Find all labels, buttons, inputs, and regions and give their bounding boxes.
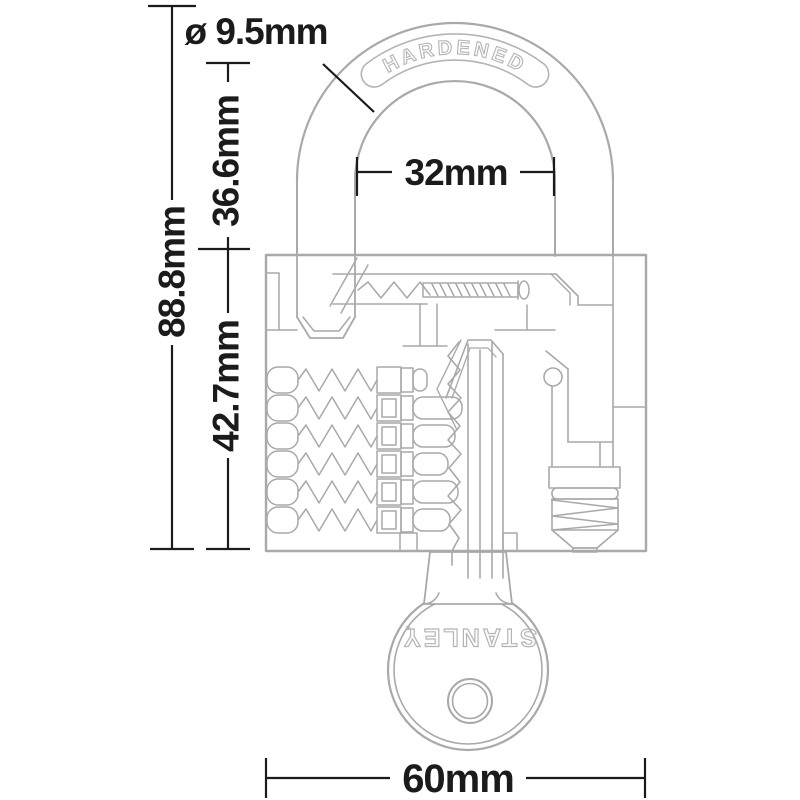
latch-mechanism: [544, 256, 620, 552]
trademark-dot: [406, 626, 410, 630]
shackle-spring-screw: [358, 281, 529, 299]
dim-text-body-height: 42.7mm: [206, 320, 247, 452]
dim-text-body-width: 60mm: [402, 757, 514, 800]
pin-springs: [267, 367, 462, 533]
key-brand-label: STANLEY: [401, 623, 537, 651]
dim-text-shackle-width: 32mm: [405, 152, 508, 193]
dim-text-overall-height: 88.8mm: [152, 206, 193, 338]
dim-text-shackle-diameter: ø 9.5mm: [184, 11, 327, 52]
dim-shackle-dia-leader: [323, 64, 374, 112]
diagram-canvas: HARDENED STANLEY: [0, 0, 800, 800]
padlock-diagram: HARDENED STANLEY: [0, 0, 800, 800]
dim-text-shackle-height: 36.6mm: [206, 95, 247, 227]
